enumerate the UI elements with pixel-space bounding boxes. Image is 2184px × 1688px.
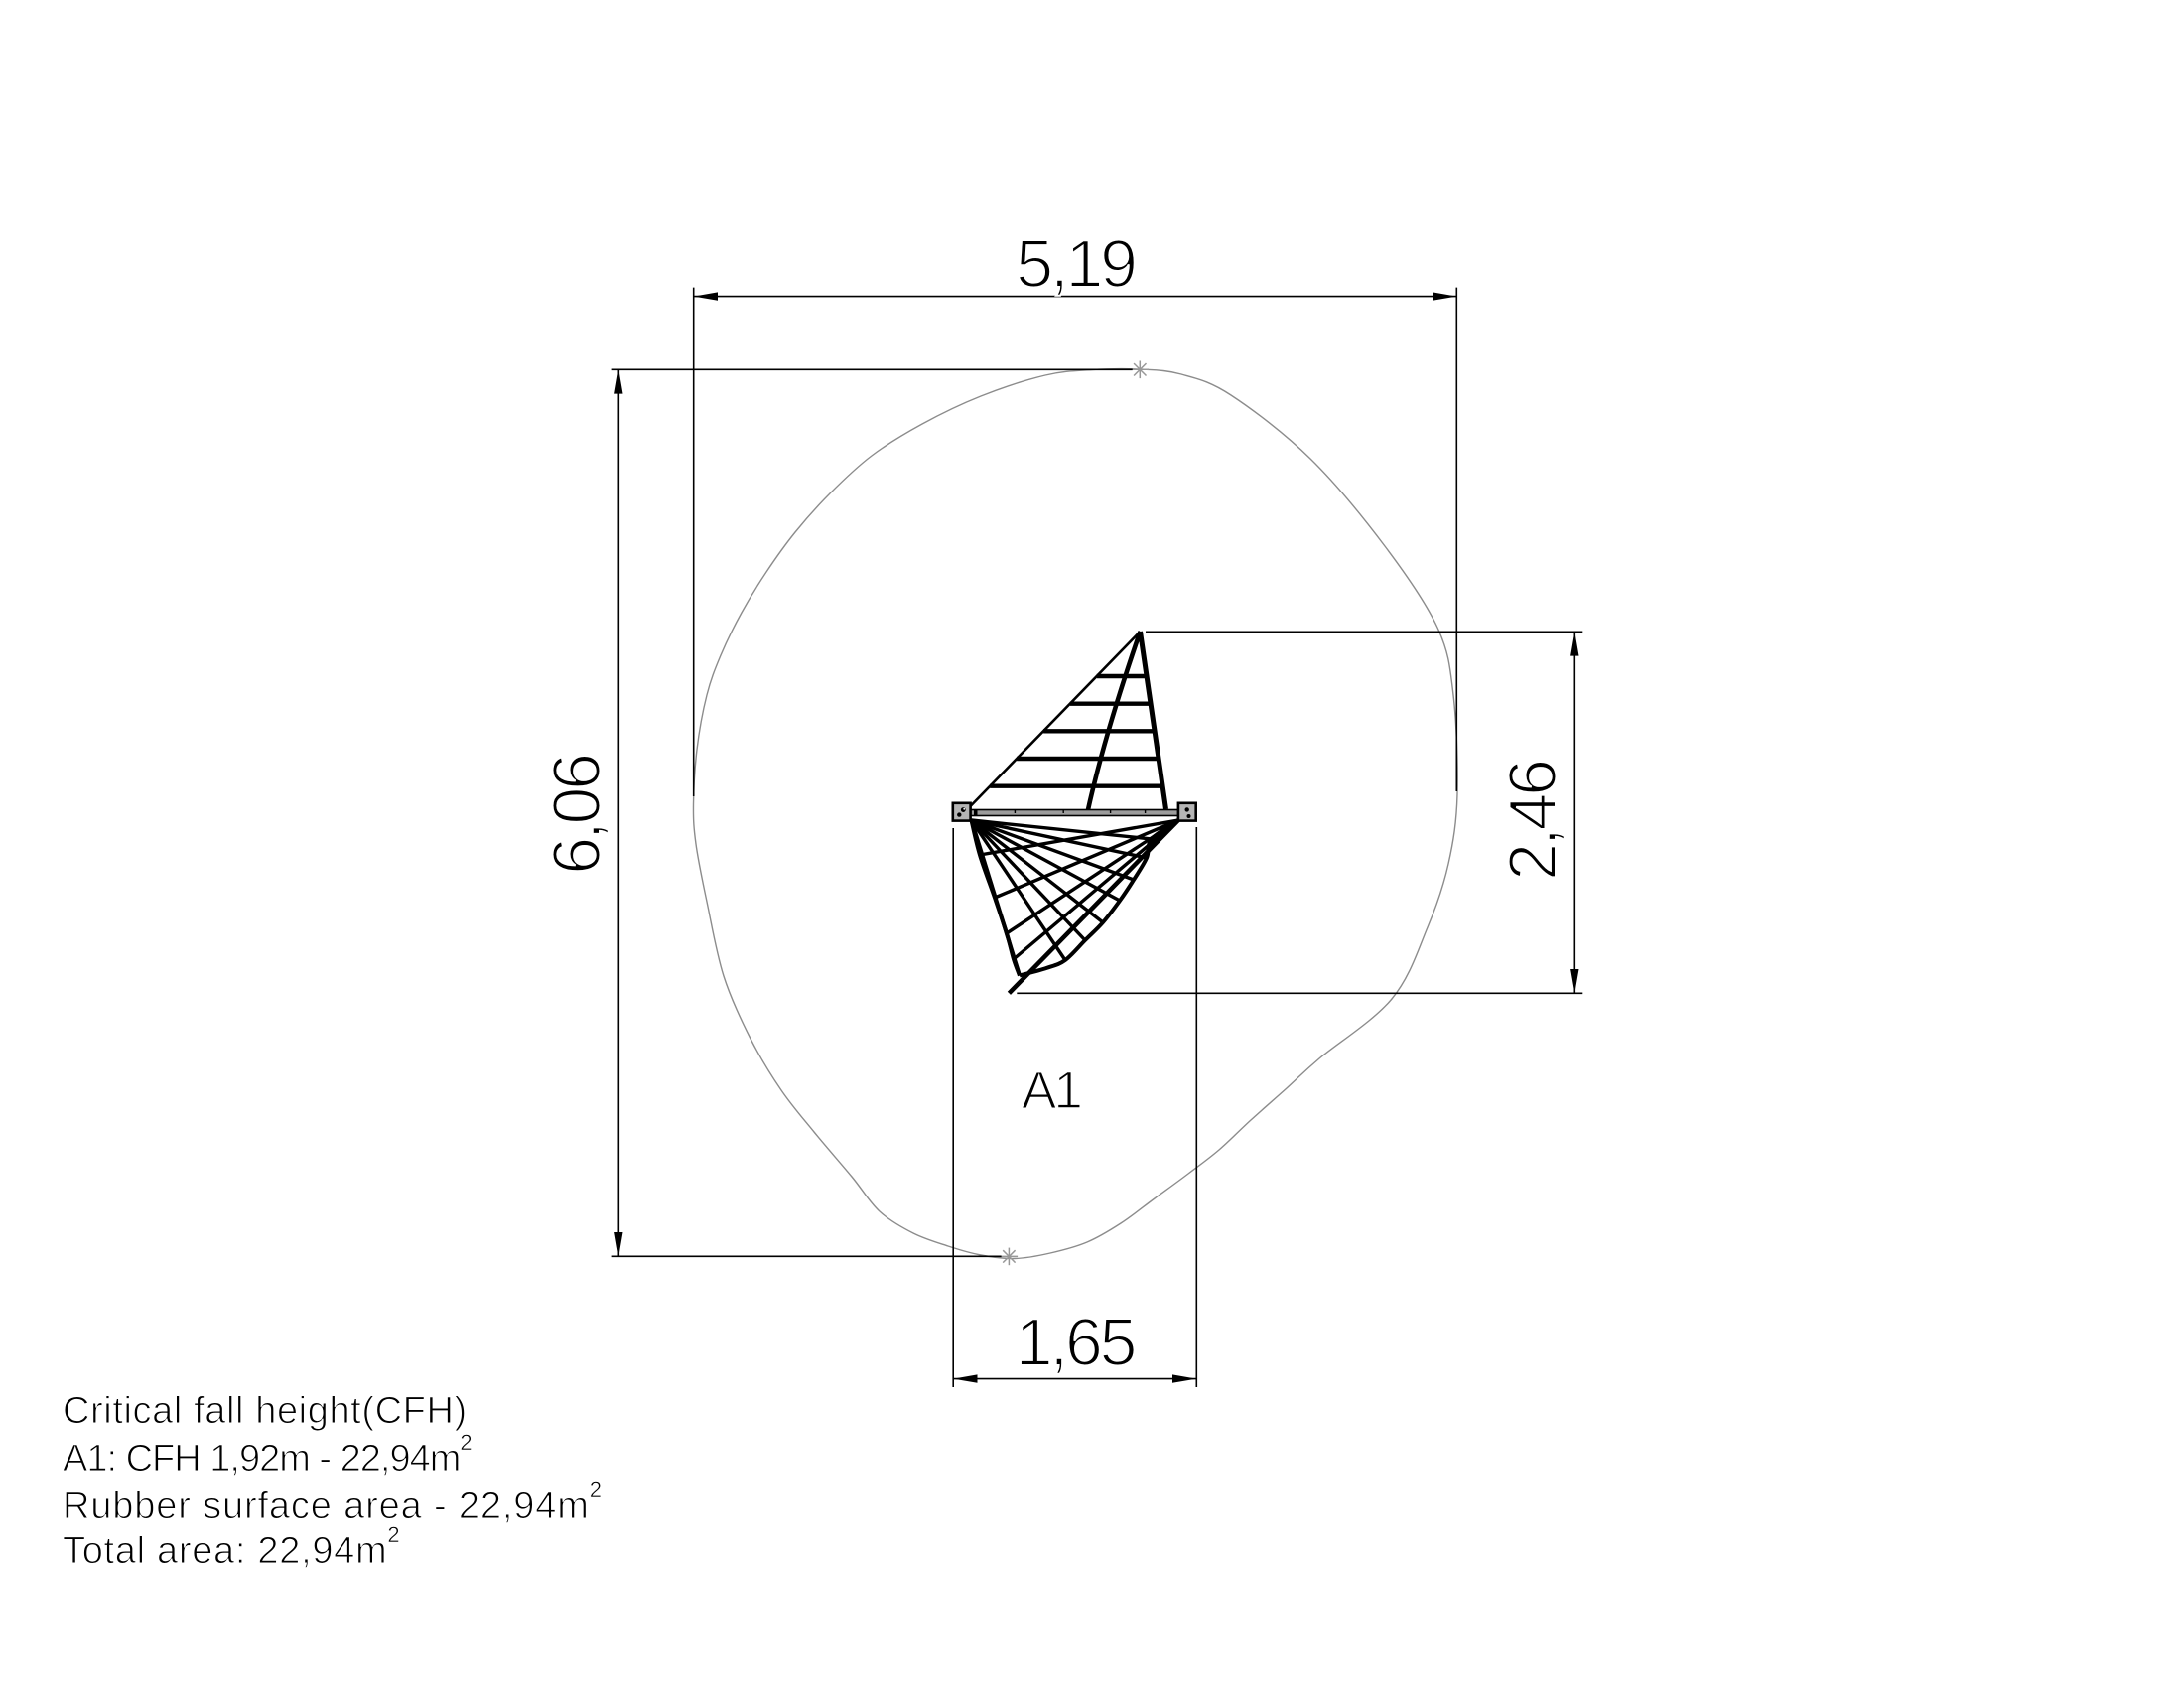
svg-text:1,65: 1,65 xyxy=(1016,1305,1135,1380)
svg-text:Rubber surface area - 22,94m2: Rubber surface area - 22,94m2 xyxy=(63,1477,603,1527)
svg-text:6,06: 6,06 xyxy=(539,756,614,875)
svg-text:5,19: 5,19 xyxy=(1016,226,1135,302)
svg-text:2,46: 2,46 xyxy=(1495,762,1570,881)
svg-text:Total area: 22,94m2: Total area: 22,94m2 xyxy=(63,1522,400,1572)
svg-text:Critical fall height(CFH): Critical fall height(CFH) xyxy=(63,1390,468,1432)
svg-text:A1: A1 xyxy=(1022,1061,1080,1120)
svg-text:A1: CFH 1,92m - 22,94m2: A1: CFH 1,92m - 22,94m2 xyxy=(63,1430,472,1479)
